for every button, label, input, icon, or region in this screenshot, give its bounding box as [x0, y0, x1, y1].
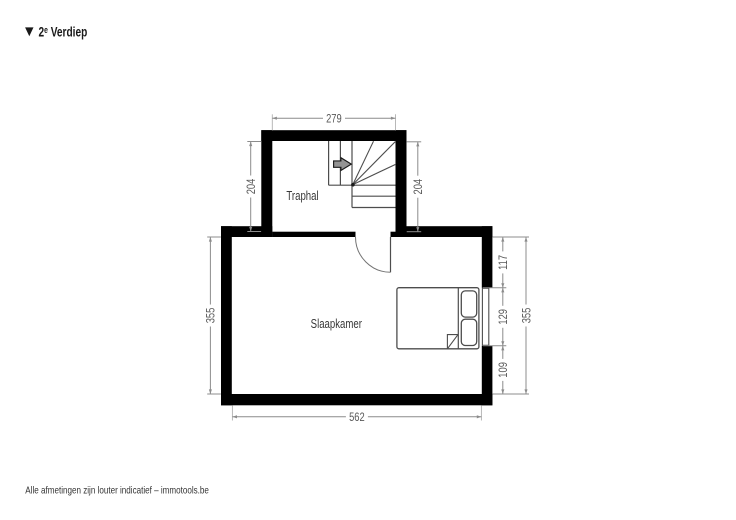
svg-text:562: 562	[349, 411, 365, 424]
svg-text:2ᵉ Verdiep: 2ᵉ Verdiep	[39, 24, 88, 40]
svg-text:279: 279	[326, 112, 342, 125]
svg-text:129: 129	[497, 309, 510, 325]
svg-text:204: 204	[245, 179, 258, 195]
svg-text:109: 109	[497, 362, 510, 378]
svg-text:355: 355	[205, 308, 218, 324]
svg-text:Slaapkamer: Slaapkamer	[311, 318, 362, 332]
svg-text:355: 355	[520, 308, 533, 324]
svg-text:204: 204	[412, 179, 425, 195]
svg-text:117: 117	[497, 255, 510, 270]
svg-text:Alle afmetingen zijn louter in: Alle afmetingen zijn louter indicatief –…	[25, 485, 209, 496]
svg-text:Traphal: Traphal	[286, 190, 318, 204]
